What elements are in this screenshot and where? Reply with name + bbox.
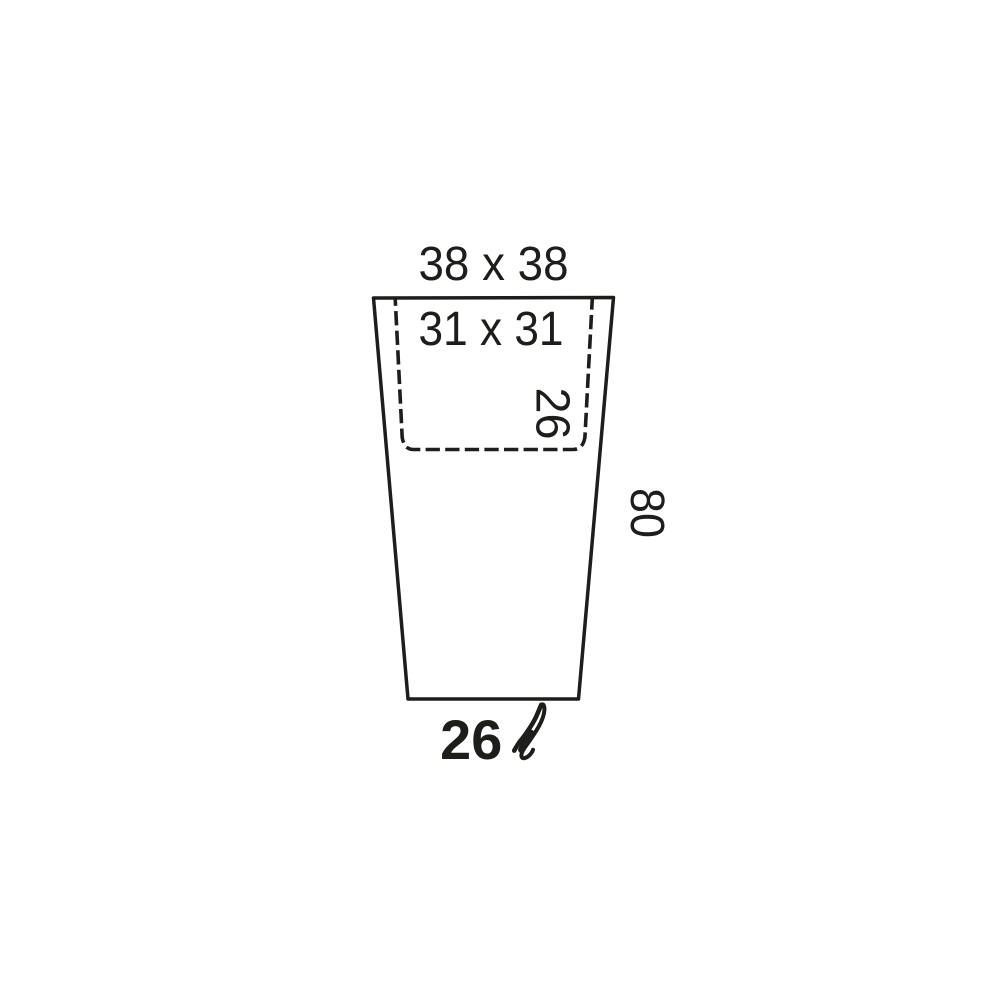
svg-text:26: 26 [526, 388, 579, 440]
svg-text:26: 26 [440, 708, 502, 771]
svg-text:38 x 38: 38 x 38 [419, 238, 569, 291]
svg-text:31 x 31: 31 x 31 [419, 303, 564, 356]
svg-text:80: 80 [620, 488, 673, 538]
